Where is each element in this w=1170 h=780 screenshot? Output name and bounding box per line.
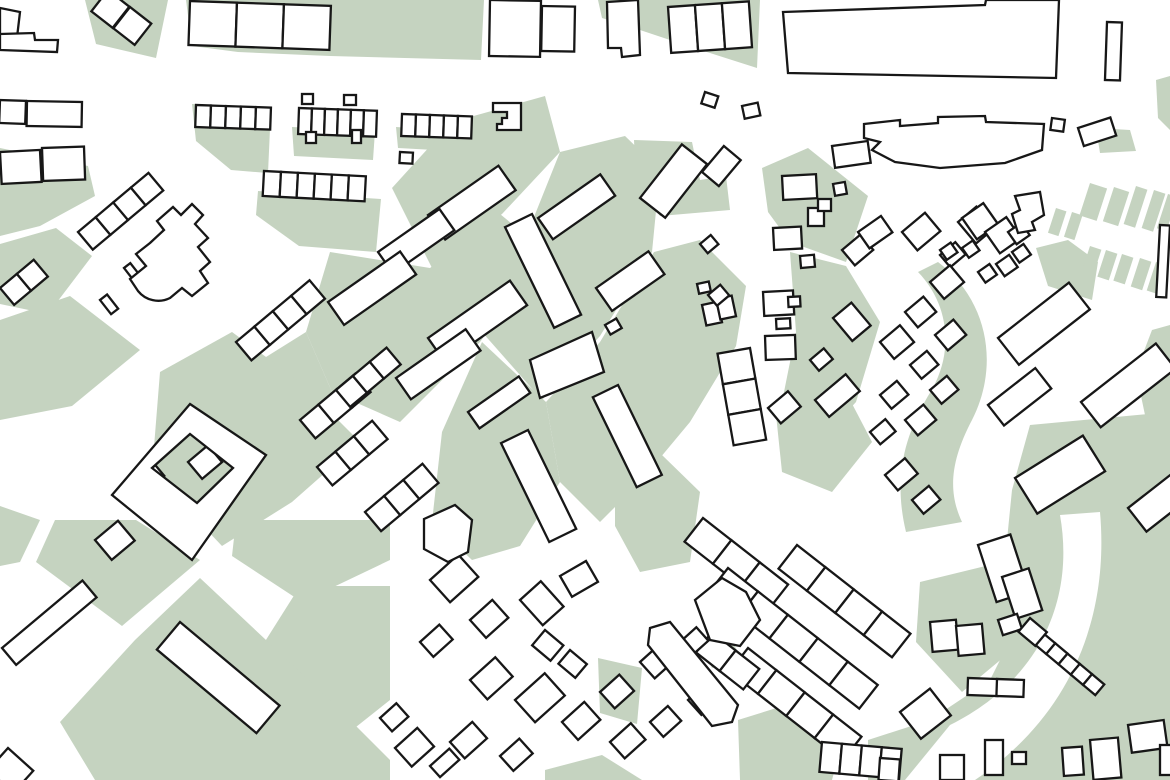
building-footprint [348,175,366,201]
building-footprint [832,141,871,168]
building-footprint [363,110,377,136]
map-canvas[interactable] [0,0,1170,780]
building-footprint [800,255,815,268]
building-footprint [0,100,26,124]
building-footprint [773,227,802,250]
building-footprint [697,282,711,294]
building-footprint [541,6,575,52]
building-footprint [695,3,725,51]
building-footprint [833,182,847,196]
building-footprint [352,130,361,143]
building-footprint [788,296,801,307]
building-footprint [297,173,315,199]
building-footprint [306,132,316,143]
building-footprint [195,105,211,128]
building-footprint [839,744,862,776]
building-footprint [255,107,271,130]
building-footprint [263,171,281,197]
building-footprint [210,106,226,129]
building-footprint [940,755,964,780]
building-footprint [415,114,430,136]
building-footprint [401,114,416,136]
building-footprint [1012,752,1026,764]
building-footprint [240,107,256,130]
building-footprint [782,174,817,200]
building-footprint [985,740,1003,775]
building-footprint [489,0,541,57]
building-footprint [818,199,831,211]
building-footprint [42,147,85,181]
building-footprint [331,175,349,201]
building-footprint [280,172,298,198]
building-footprint [956,624,985,656]
building-footprint [1156,225,1170,297]
building-footprint [819,742,842,774]
building-footprint [1105,22,1122,80]
building-footprint [701,92,718,108]
building-footprint [930,620,959,652]
building-footprint [1090,738,1121,780]
building-footprint [765,335,796,360]
building-footprint [783,0,1059,78]
building-footprint [1050,118,1065,132]
building-footprint [878,758,899,780]
building-footprint [742,103,760,119]
building-footprint [429,115,444,137]
building-footprint [722,1,752,49]
building-footprint [27,101,82,127]
building-footprint [399,152,413,164]
building-footprint [776,318,791,329]
building-footprint [457,116,472,138]
building-footprint [302,94,313,104]
building-footprint [235,3,284,49]
building-footprint [996,679,1024,697]
building-footprint [0,150,42,184]
building-footprint [728,409,766,445]
map-viewport [0,0,1170,780]
building-footprint [443,115,458,137]
building-footprint [1160,745,1170,775]
building-footprint [344,95,356,105]
building-footprint [337,109,351,135]
building-footprint [282,4,331,50]
building-footprint [298,108,312,134]
building-footprint [1062,747,1084,776]
building-footprint [967,678,998,696]
building-footprint [607,0,640,57]
building-footprint [668,5,698,53]
building-footprint [188,1,237,47]
building-footprint [314,174,332,200]
building-footprint [324,109,338,135]
building-footprint [225,106,241,129]
